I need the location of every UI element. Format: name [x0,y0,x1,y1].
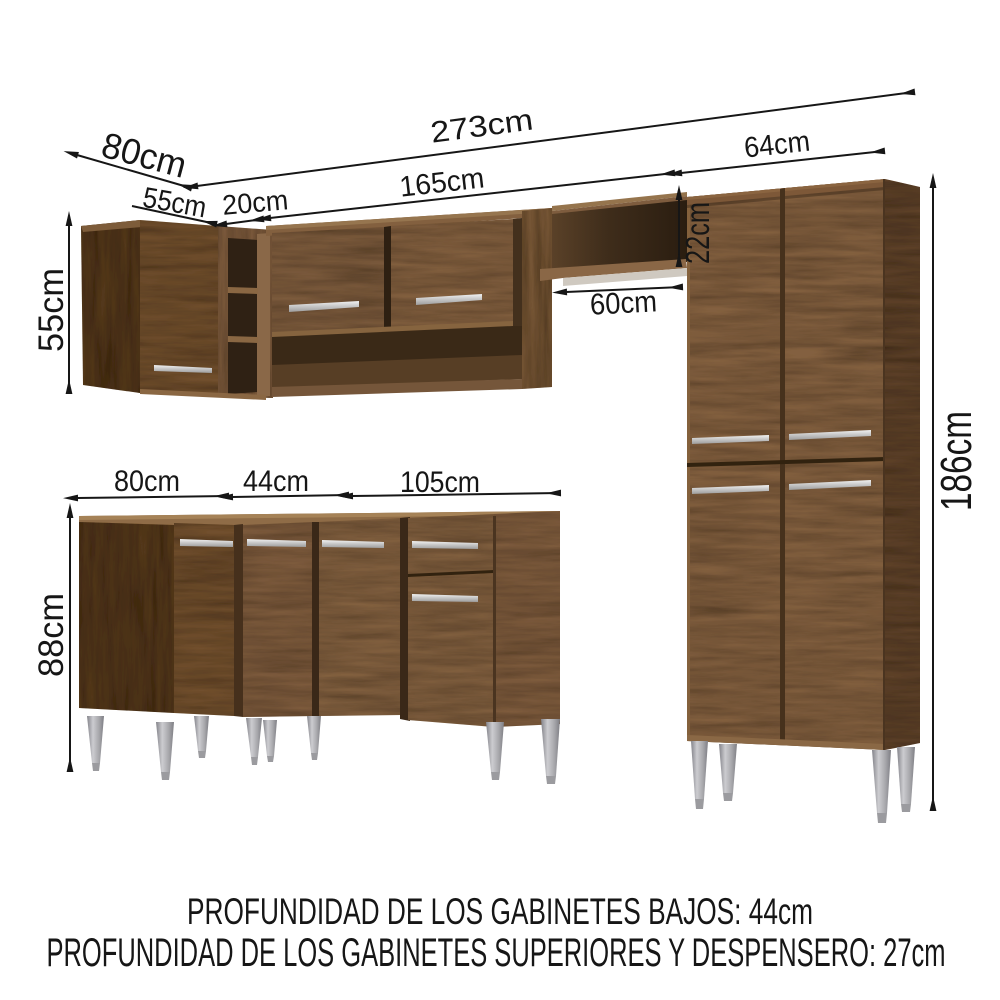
svg-text:88cm: 88cm [32,593,71,677]
svg-text:44cm: 44cm [243,465,309,498]
svg-text:186cm: 186cm [932,411,981,511]
svg-text:22cm: 22cm [679,202,716,264]
svg-text:60cm: 60cm [589,285,658,321]
svg-text:80cm: 80cm [114,465,180,498]
svg-text:105cm: 105cm [400,466,480,499]
svg-text:55cm: 55cm [32,268,71,352]
svg-text:PROFUNDIDAD DE LOS GABINETES B: PROFUNDIDAD DE LOS GABINETES BAJOS: 44cm [187,891,813,932]
svg-text:PROFUNDIDAD DE LOS GABINETES S: PROFUNDIDAD DE LOS GABINETES SUPERIORES … [47,931,946,975]
svg-text:20cm: 20cm [221,184,289,221]
